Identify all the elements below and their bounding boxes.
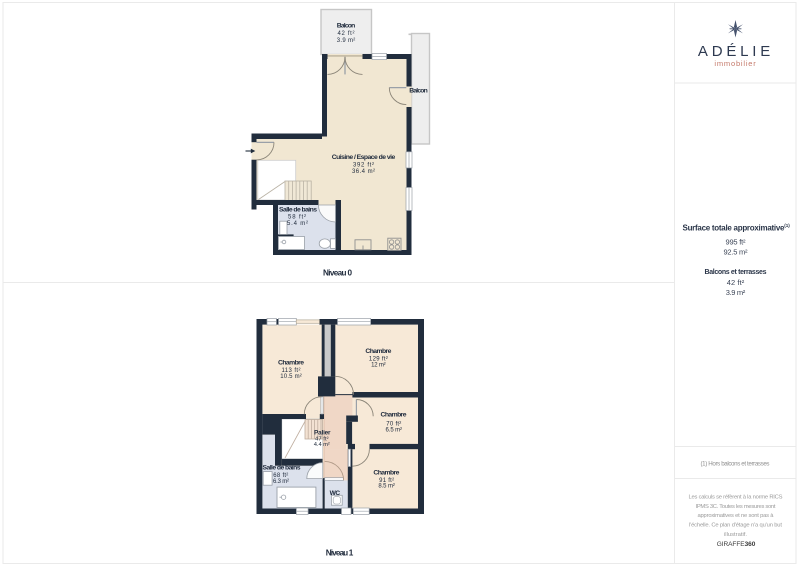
svg-text:Balcon: Balcon xyxy=(409,88,428,95)
svg-text:Chambre: Chambre xyxy=(278,359,304,366)
svg-text:Salle de bains: Salle de bains xyxy=(263,465,301,472)
svg-text:Les calculs se réfèrent à la n: Les calculs se réfèrent à la norme RICS xyxy=(689,494,783,500)
svg-text:Niveau 0: Niveau 0 xyxy=(323,269,352,278)
svg-text:42 ft²: 42 ft² xyxy=(338,31,355,37)
svg-text:10.5 m²: 10.5 m² xyxy=(280,374,302,380)
svg-text:Balcons et terrasses: Balcons et terrasses xyxy=(705,269,767,276)
svg-text:illustratif.: illustratif. xyxy=(724,532,747,538)
svg-text:3.9 m²: 3.9 m² xyxy=(337,38,356,44)
svg-text:ADÉLIE: ADÉLIE xyxy=(698,43,774,60)
svg-text:6.5 m²: 6.5 m² xyxy=(386,427,403,433)
svg-text:6.3 m²: 6.3 m² xyxy=(273,479,289,485)
svg-text:Salle de bains: Salle de bains xyxy=(279,206,317,213)
svg-text:(1): (1) xyxy=(784,223,790,228)
svg-text:995 ft²: 995 ft² xyxy=(726,238,747,247)
svg-text:4.4 m²: 4.4 m² xyxy=(314,442,330,448)
svg-text:Chambre: Chambre xyxy=(373,470,399,477)
svg-text:Balcon: Balcon xyxy=(337,22,356,29)
svg-text:WC: WC xyxy=(330,490,341,497)
svg-text:42 ft²: 42 ft² xyxy=(727,278,745,287)
svg-text:(1) Hors balcons et terrasses: (1) Hors balcons et terrasses xyxy=(701,461,770,468)
svg-text:12 m²: 12 m² xyxy=(371,362,386,368)
svg-text:5.4 m²: 5.4 m² xyxy=(287,221,308,227)
svg-text:IPMS 3C. Toutes les mesures so: IPMS 3C. Toutes les mesures sont xyxy=(696,504,776,510)
svg-text:392 ft²: 392 ft² xyxy=(353,162,374,168)
svg-text:Surface totale approximative: Surface totale approximative xyxy=(683,224,786,233)
svg-text:Cuisine / Espace de vie: Cuisine / Espace de vie xyxy=(332,154,396,161)
svg-text:Niveau 1: Niveau 1 xyxy=(326,549,354,558)
svg-text:Chambre: Chambre xyxy=(365,348,391,355)
svg-text:Chambre: Chambre xyxy=(381,412,407,419)
svg-text:3.9 m²: 3.9 m² xyxy=(726,288,746,297)
svg-text:36.4 m²: 36.4 m² xyxy=(352,169,375,175)
svg-text:Palier: Palier xyxy=(314,429,331,436)
svg-text:92.5 m²: 92.5 m² xyxy=(724,248,749,257)
svg-text:immobilier: immobilier xyxy=(714,59,756,68)
svg-text:l'échelle. Ce plan d'étage n'a: l'échelle. Ce plan d'étage n'a qu'un but xyxy=(689,523,782,529)
svg-text:GIRAFFE360: GIRAFFE360 xyxy=(717,541,756,548)
svg-text:8.5 m²: 8.5 m² xyxy=(378,484,395,490)
svg-text:58 ft²: 58 ft² xyxy=(288,215,306,221)
svg-text:approximatives et ne sont pas: approximatives et ne sont pas à xyxy=(698,513,775,519)
